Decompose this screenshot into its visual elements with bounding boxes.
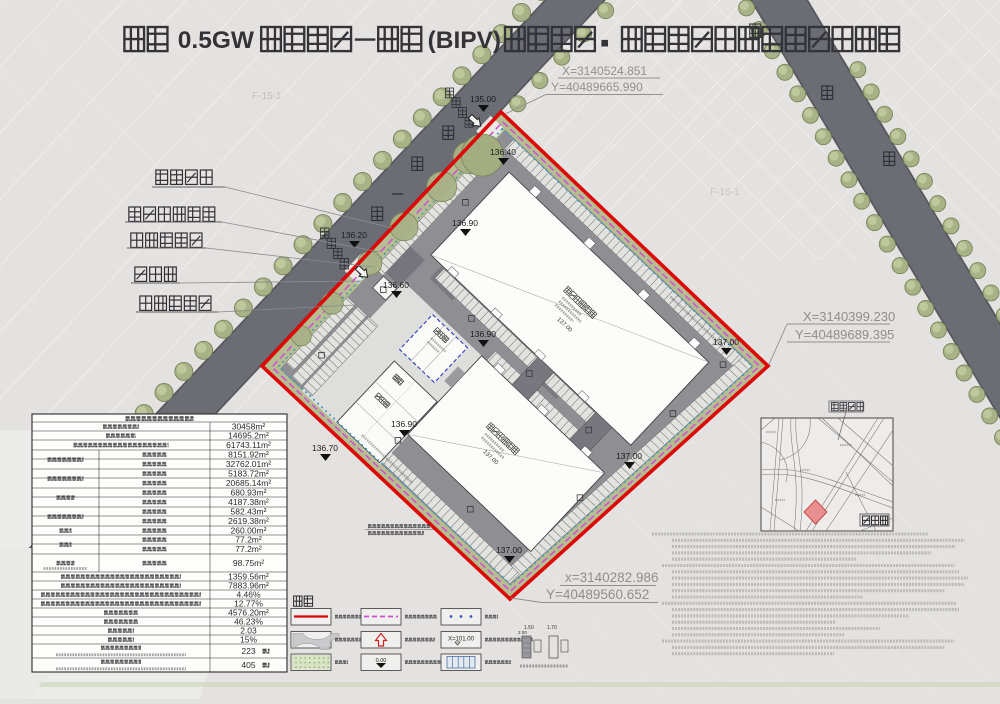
svg-text:135.00: 135.00 (470, 94, 496, 104)
svg-text:8151.92m²: 8151.92m² (228, 449, 269, 459)
svg-text:Y=40489665.990: Y=40489665.990 (551, 80, 643, 94)
svg-text:77.2m²: 77.2m² (235, 534, 262, 544)
svg-text:136.70: 136.70 (312, 443, 338, 453)
svg-text:61743.11m²: 61743.11m² (226, 440, 271, 450)
svg-text:32762.01m²: 32762.01m² (226, 459, 272, 469)
svg-text:X=101.00: X=101.00 (448, 637, 475, 643)
svg-text:136.20: 136.20 (341, 230, 367, 240)
svg-text:X=3140524.851: X=3140524.851 (562, 64, 647, 78)
svg-text:20685.14m²: 20685.14m² (226, 478, 272, 488)
svg-text:2.00: 2.00 (518, 630, 527, 635)
svg-text:77.2m²: 77.2m² (235, 544, 262, 554)
svg-text:F-16-1: F-16-1 (710, 187, 740, 198)
svg-text:0.5GW: 0.5GW (178, 27, 255, 54)
svg-text:2619.38m²: 2619.38m² (228, 516, 269, 526)
svg-text:x=3140282.986: x=3140282.986 (565, 570, 658, 585)
svg-text:582.43m²: 582.43m² (231, 506, 267, 516)
svg-text:5183.72m²: 5183.72m² (228, 468, 269, 478)
svg-text:Y=40489560.652: Y=40489560.652 (546, 587, 649, 602)
svg-text:98.75m²: 98.75m² (233, 558, 264, 568)
svg-text:137.00: 137.00 (496, 545, 522, 555)
svg-text:223: 223 (241, 646, 255, 656)
svg-text:X=3140399.230: X=3140399.230 (803, 309, 895, 324)
svg-text:137.00: 137.00 (713, 337, 739, 347)
svg-text:15%: 15% (240, 634, 257, 644)
svg-text:Y=40489689.395: Y=40489689.395 (795, 327, 894, 342)
svg-text:14695.2m²: 14695.2m² (228, 430, 269, 440)
svg-text:136.90: 136.90 (391, 419, 417, 429)
svg-text:136.90: 136.90 (452, 218, 478, 228)
svg-text:F-15-1: F-15-1 (252, 91, 282, 102)
svg-text:136.90: 136.90 (470, 329, 496, 339)
svg-text:4187.38m²: 4187.38m² (228, 497, 269, 507)
svg-text:405: 405 (241, 660, 255, 670)
svg-text:137.00: 137.00 (616, 451, 642, 461)
svg-text:1.70: 1.70 (547, 625, 557, 631)
svg-text:(BIPV): (BIPV) (428, 27, 502, 54)
svg-text:136.60: 136.60 (383, 280, 409, 290)
svg-text:136.40: 136.40 (490, 147, 516, 157)
svg-text:680.93m²: 680.93m² (231, 487, 267, 497)
